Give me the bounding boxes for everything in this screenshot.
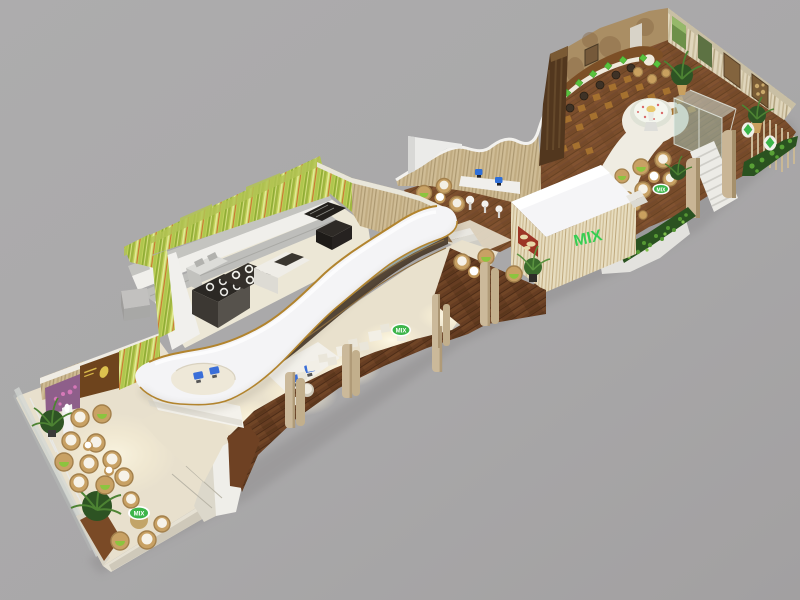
svg-text:MIX: MIX xyxy=(396,329,407,335)
svg-text:MIX: MIX xyxy=(657,188,667,194)
svg-text:MIX: MIX xyxy=(134,512,145,518)
